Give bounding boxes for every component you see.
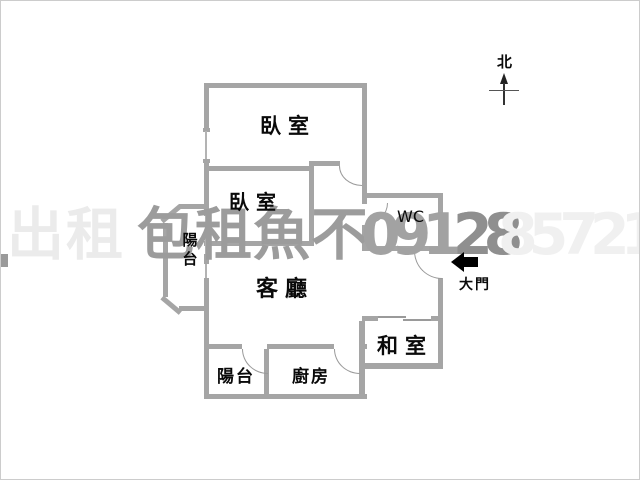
wall-bedroom-top-north	[204, 83, 367, 88]
north-arrow-line	[503, 83, 505, 105]
wall-bottom	[204, 394, 367, 399]
wall-balcony-left-outer	[163, 223, 168, 297]
door-arc-entrance	[414, 251, 442, 279]
wall-west-lower	[204, 278, 209, 399]
wall-tatami-north-b	[431, 316, 443, 321]
room-label-living: 客廳	[256, 278, 314, 302]
wall-bedroom-top-east	[362, 83, 367, 199]
wall-bedroom-mid-north	[204, 166, 314, 171]
wall-wc-north	[367, 193, 443, 198]
sliding-door-tatami-b	[403, 319, 431, 321]
sliding-door-tatami-a	[378, 316, 406, 318]
watermark-segment: 85721	[498, 207, 640, 264]
wall-balcony-left-bottom	[179, 306, 206, 311]
wall-living-south-b	[267, 344, 334, 349]
floor-plan: 臥室 臥室 WC 客廳 陽台 和室 陽台 廚房 大門 北 出租包租魚不09122…	[0, 0, 640, 480]
room-label-wc: WC	[397, 208, 424, 226]
wall-bedroom-top-west-a	[204, 83, 209, 129]
wall-living-south-a	[204, 344, 242, 349]
door-arc-wc	[367, 203, 388, 224]
room-label-bedroom-mid: 臥室	[229, 191, 283, 213]
window-stub	[204, 254, 209, 264]
room-label-balcony-left: 陽台	[181, 232, 198, 270]
door-arc-bedroom-top	[339, 166, 362, 186]
watermark: 出租包租魚不09122885721	[1, 1, 640, 480]
window-living-west-b	[205, 264, 207, 278]
entrance-label: 大門	[459, 278, 491, 293]
window-bedroom-top	[205, 131, 207, 160]
wall-balcony-left-diag-top	[160, 204, 182, 223]
wall-balcony-left-top	[179, 204, 206, 209]
wall-tatami-south	[364, 363, 443, 369]
north-arrow-cross	[489, 90, 519, 91]
wall-east-lower	[438, 278, 443, 369]
window-living-west-a	[205, 216, 207, 254]
entrance-arrow-tail	[462, 257, 478, 267]
room-label-tatami: 和室	[377, 335, 433, 358]
wall-east-upper	[438, 193, 443, 251]
wall-bedroom-mid-east	[309, 166, 314, 246]
room-label-balcony-bottom: 陽台	[217, 368, 255, 387]
north-label: 北	[497, 54, 514, 71]
window-stub	[204, 204, 209, 216]
door-arc-kitchen	[334, 349, 360, 374]
wall-bedroom-mid-south	[204, 241, 314, 246]
watermark-segment: 出租	[7, 207, 125, 264]
room-label-kitchen: 廚房	[292, 368, 330, 387]
watermark-edge-mark	[1, 254, 8, 267]
room-label-bedroom-top: 臥室	[260, 115, 316, 138]
